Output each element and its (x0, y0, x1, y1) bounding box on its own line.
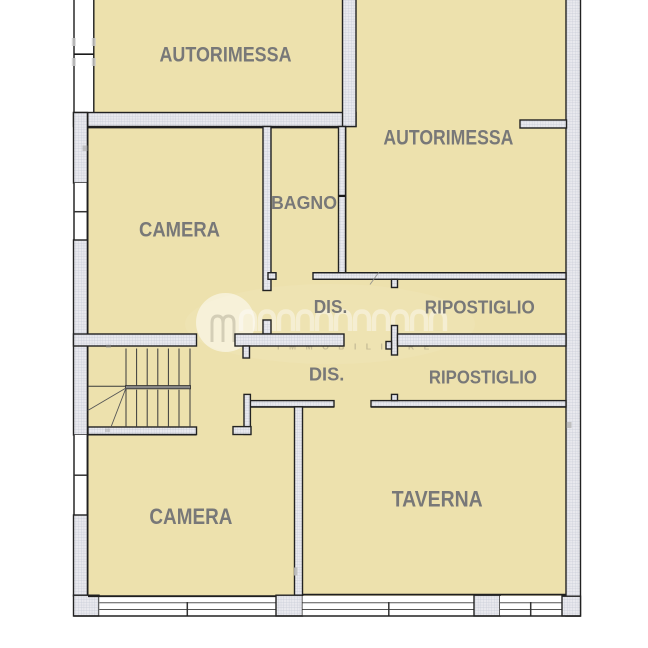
svg-text:RIPOSTIGLIO: RIPOSTIGLIO (429, 367, 537, 388)
svg-text:DIS.: DIS. (314, 296, 348, 317)
svg-text:AUTORIMESSA: AUTORIMESSA (383, 126, 513, 150)
svg-text:CAMERA: CAMERA (139, 217, 220, 241)
svg-text:BAGNO: BAGNO (271, 193, 337, 213)
svg-text:CAMERA: CAMERA (149, 504, 232, 529)
svg-text:TAVERNA: TAVERNA (392, 486, 483, 511)
svg-text:RIPOSTIGLIO: RIPOSTIGLIO (425, 296, 535, 317)
svg-text:DIS.: DIS. (309, 364, 345, 385)
svg-text:AUTORIMESSA: AUTORIMESSA (160, 42, 292, 66)
